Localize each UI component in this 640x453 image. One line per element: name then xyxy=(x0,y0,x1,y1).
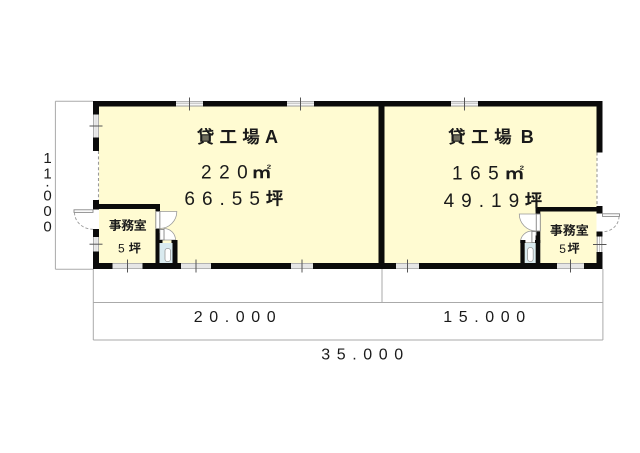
svg-text:49.19: 49.19 xyxy=(444,191,527,212)
svg-text:165: 165 xyxy=(452,163,506,184)
svg-text:15.000: 15.000 xyxy=(443,309,532,326)
svg-text:66.55: 66.55 xyxy=(184,189,267,210)
svg-text:A: A xyxy=(265,127,278,147)
svg-text:1: 1 xyxy=(43,150,51,167)
svg-text:5: 5 xyxy=(118,242,125,256)
svg-text:220: 220 xyxy=(201,162,255,183)
svg-text:5: 5 xyxy=(559,242,566,256)
svg-text:20.000: 20.000 xyxy=(194,309,283,326)
svg-text:35.000: 35.000 xyxy=(321,347,410,364)
svg-text:B: B xyxy=(521,127,534,147)
svg-text:0: 0 xyxy=(43,218,51,235)
svg-text:0: 0 xyxy=(43,187,51,204)
